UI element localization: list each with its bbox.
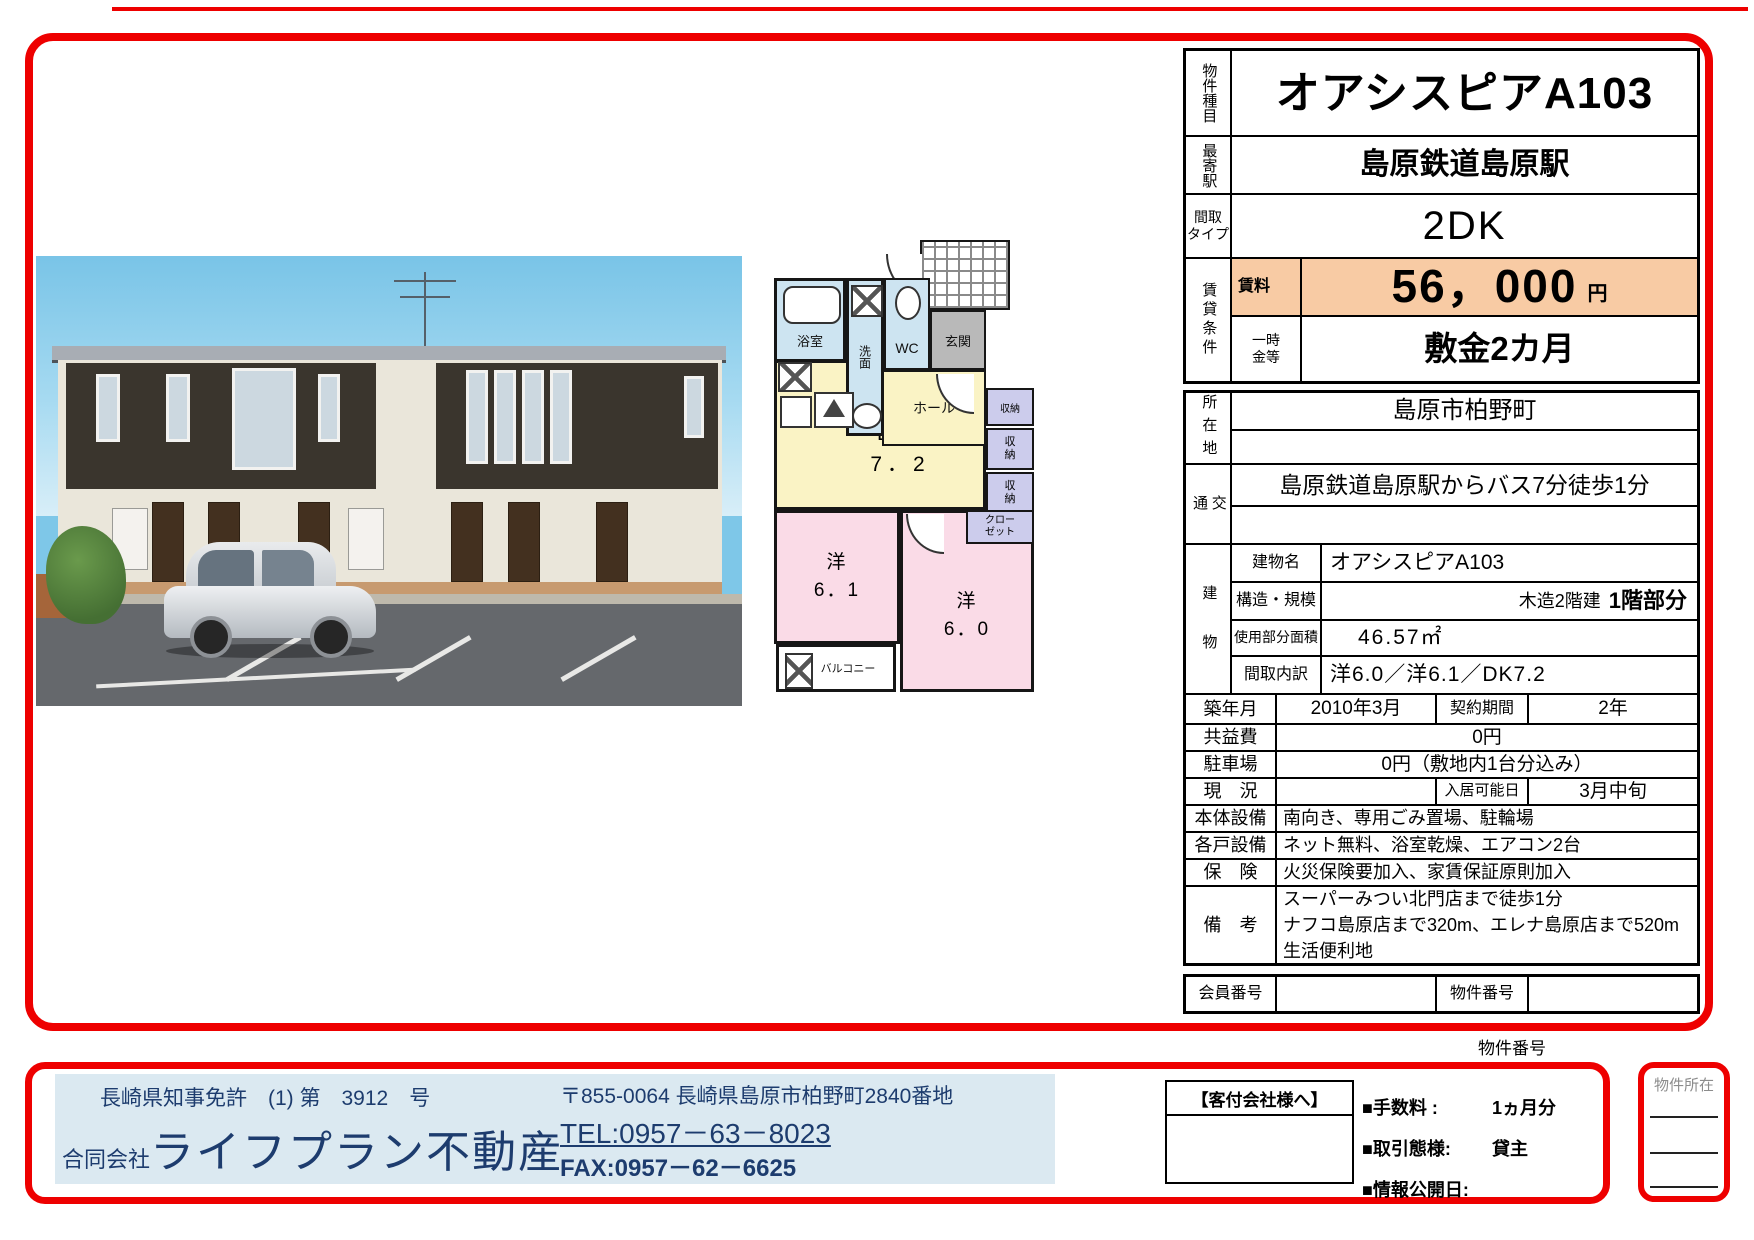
location-extra: [1232, 431, 1697, 463]
room-genkan: 玄関: [930, 310, 986, 370]
window: [684, 376, 704, 438]
car-wheel: [190, 616, 232, 658]
insurance-label: 保 険: [1186, 860, 1275, 885]
remarks-value: スーパーみつい北門店まで徒歩1分 ナフコ島原店まで320m、エレナ島原店まで52…: [1277, 887, 1697, 963]
porch-hatch: [920, 240, 1010, 310]
storage-2: 収 納: [986, 428, 1034, 470]
fax-number: FAX:0957－62－6625: [560, 1148, 796, 1183]
structure-a: 木造2階建: [1519, 590, 1601, 613]
movein-label: 入居可能日: [1437, 779, 1527, 804]
kyoekihi-label: 共益費: [1186, 725, 1275, 750]
window: [96, 374, 120, 442]
info-label: ■情報公開日:: [1362, 1176, 1492, 1202]
unit-equipment-label: 各戸設備: [1186, 833, 1275, 858]
torihiki-label: ■取引態様:: [1362, 1135, 1492, 1161]
window: [466, 370, 488, 464]
property-location-box: 物件所在: [1638, 1062, 1730, 1202]
member-label: 会員番号: [1186, 977, 1275, 1011]
location-value: 島原市柏野町: [1232, 393, 1697, 429]
fee-label: ■手数料 :: [1362, 1094, 1492, 1120]
property-table-bottom: 会員番号 物件番号: [1183, 974, 1700, 1014]
flyer-page: ＤＫ 7．2 ホール 浴室 洗面 WC 玄関 収納: [0, 0, 1754, 1240]
main-equipment-label: 本体設備: [1186, 806, 1275, 831]
madori-type-label: 間取 タイプ: [1186, 195, 1230, 257]
balcony: バルコニー: [776, 644, 896, 692]
agent-notice-box: 【客付会社様へ】: [1165, 1080, 1354, 1184]
floorplan: ＤＫ 7．2 ホール 浴室 洗面 WC 玄関 収納: [770, 240, 1046, 698]
storage-1: 収納: [986, 388, 1034, 426]
window: [550, 370, 572, 464]
fee-line: ■手数料 : 1ヵ月分: [1362, 1094, 1610, 1120]
company-name: 合同会社 ライフプラン不動産: [62, 1116, 564, 1180]
torihiki-value: 貸主: [1492, 1135, 1528, 1161]
license-number: 長崎県知事免許 (1) 第 3912 号: [100, 1082, 430, 1112]
madori-detail-label: 間取内訳: [1232, 657, 1320, 693]
parking-value: 0円（敷地内1台分込み）: [1277, 752, 1697, 777]
structure-label: 構造・規模: [1232, 583, 1320, 619]
room-yo61-label: 洋 6．1: [814, 549, 860, 606]
window: [318, 374, 340, 442]
postal-address: 〒855-0064 長崎県島原市柏野町2840番地: [560, 1080, 953, 1110]
toilet-icon: [895, 286, 921, 320]
kyoekihi-value: 0円: [1277, 725, 1697, 750]
company-prefix: 合同会社: [62, 1142, 150, 1174]
fee-value: 1ヵ月分: [1492, 1094, 1556, 1120]
status-label: 現 況: [1186, 779, 1275, 804]
top-red-line: [112, 7, 1748, 11]
entry-door: [508, 502, 540, 582]
location-label: 所在地: [1186, 393, 1230, 463]
madori-detail-value: 洋6.0／洋6.1／DK7.2: [1322, 657, 1697, 693]
building-name-value: オアシスピアA103: [1322, 545, 1697, 581]
area-label: 使用部分面積: [1232, 621, 1320, 655]
window: [522, 370, 544, 464]
property-name: オアシスピアA103: [1232, 51, 1697, 135]
kitchen-sink-icon: [780, 396, 812, 428]
remarks-label: 備 考: [1186, 887, 1275, 963]
window: [166, 374, 190, 442]
access-extra: [1232, 507, 1697, 543]
company-main: ライフプラン不動産: [150, 1116, 564, 1180]
ichijikin-label: 一時 金等: [1232, 317, 1300, 381]
torihiki-line: ■取引態様: 貸主: [1362, 1135, 1610, 1161]
window: [494, 370, 516, 464]
member-value: [1277, 977, 1435, 1011]
rent-label: 賃料: [1232, 259, 1300, 315]
terms-block: ■手数料 : 1ヵ月分 ■取引態様: 貸主 ■情報公開日:: [1362, 1094, 1610, 1202]
building-label: 建物: [1186, 545, 1230, 693]
contract-value: 2年: [1529, 695, 1697, 723]
property-type-label: 物件種目: [1186, 51, 1230, 135]
property-table-top: 物件種目 オアシスピアA103 最寄駅 島原鉄道島原駅 間取 タイプ 2DK 賃…: [1183, 48, 1700, 384]
closet: クロー ゼット: [966, 510, 1034, 544]
tv-antenna-bar: [394, 280, 456, 282]
balcony-label: バルコニー: [821, 660, 876, 676]
access-value: 島原鉄道島原駅からバス7分徒歩1分: [1232, 465, 1697, 505]
window: [232, 368, 296, 470]
chintai-label: 賃貸条件: [1186, 259, 1230, 381]
property-no-label: 物件番号: [1437, 977, 1527, 1011]
room-yo60-label: 洋 6．0: [944, 588, 990, 645]
agent-notice-title: 【客付会社様へ】: [1167, 1082, 1352, 1116]
parking-lot: [36, 594, 742, 706]
insurance-value: 火災保険要加入、家賃保証原則加入: [1277, 860, 1697, 885]
write-line: [1650, 1152, 1718, 1154]
built-label: 築年月: [1186, 695, 1275, 723]
unit-equipment-value: ネット無料、浴室乾燥、エアコン2台: [1277, 833, 1697, 858]
main-equipment-value: 南向き、専用ごみ置場、駐輪場: [1277, 806, 1697, 831]
room-wc-label: WC: [895, 340, 918, 356]
sink-icon: [852, 403, 882, 429]
sidewalk: [36, 594, 742, 604]
contract-label: 契約期間: [1437, 695, 1527, 723]
kitchen-stove-icon: [814, 392, 854, 428]
balcony-washer-icon: [785, 653, 813, 689]
storage-label: 収 納: [1005, 436, 1016, 461]
ichijikin-value: 敷金2カ月: [1302, 317, 1697, 381]
station-value: 島原鉄道島原駅: [1232, 137, 1697, 193]
write-line: [1650, 1116, 1718, 1118]
car-window: [198, 550, 254, 590]
madori-type-value: 2DK: [1232, 195, 1697, 257]
tel-link[interactable]: TEL:0957－63－8023: [560, 1112, 831, 1152]
property-number-caption: 物件番号: [1478, 1034, 1546, 1059]
write-line: [1650, 1186, 1718, 1188]
parking-label: 駐車場: [1186, 752, 1275, 777]
structure-b: 1階部分: [1609, 587, 1687, 615]
rent-amount: 56，000: [1392, 259, 1578, 315]
area-value: 46.57㎡: [1322, 621, 1697, 655]
bathtub-icon: [783, 286, 841, 324]
room-yo61: 洋 6．1: [774, 510, 900, 644]
rent-value: 56，000 円: [1302, 259, 1697, 315]
status-value: [1277, 779, 1435, 804]
info-line: ■情報公開日:: [1362, 1176, 1610, 1202]
property-table-main: 所在地 島原市柏野町 交通 島原鉄道島原駅からバス7分徒歩1分 建物 建物名 オ…: [1183, 390, 1700, 966]
tv-antenna-icon: [424, 272, 426, 354]
built-value: 2010年3月: [1277, 695, 1435, 723]
station-label: 最寄駅: [1186, 137, 1230, 193]
oshiire-icon: [778, 362, 812, 392]
movein-value: 3月中旬: [1529, 779, 1697, 804]
rent-unit: 円: [1587, 282, 1607, 307]
room-bath: 浴室: [774, 278, 846, 362]
building-photo: [36, 256, 742, 706]
building-name-label: 建物名: [1232, 545, 1320, 581]
storage-label: 収 納: [1005, 480, 1016, 505]
property-no-value: [1529, 977, 1697, 1011]
car-window: [262, 550, 314, 590]
entry-door: [596, 502, 628, 582]
stove-triangle: [823, 399, 845, 417]
tv-antenna-bar: [400, 296, 450, 298]
room-wash-label: 洗面: [857, 345, 874, 369]
room-bath-label: 浴室: [797, 331, 823, 350]
room-wc: WC: [884, 278, 930, 370]
car: [164, 542, 376, 660]
closet-label: クロー ゼット: [985, 515, 1015, 539]
entry-door: [451, 502, 483, 582]
property-location-label: 物件所在: [1644, 1074, 1724, 1095]
room-genkan-label: 玄関: [945, 331, 971, 350]
washer-icon: [851, 285, 883, 317]
storage-3: 収 納: [986, 472, 1034, 514]
storage-label: 収納: [1000, 400, 1020, 415]
car-wheel: [310, 616, 352, 658]
structure-value: 木造2階建 1階部分: [1322, 583, 1697, 619]
access-label: 交通: [1186, 465, 1230, 543]
